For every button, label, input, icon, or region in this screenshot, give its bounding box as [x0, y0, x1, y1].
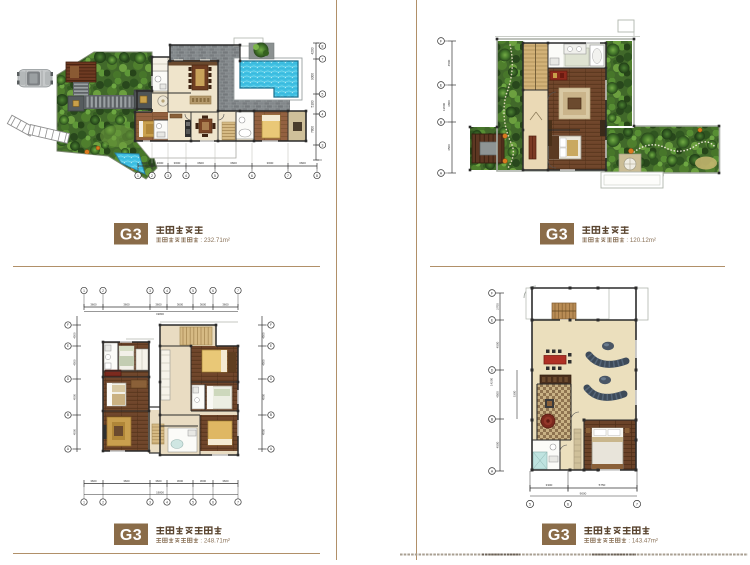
svg-text:8: 8 [322, 44, 324, 48]
svg-text:3600: 3600 [299, 161, 306, 165]
svg-text:3600: 3600 [155, 303, 162, 307]
svg-text:: 143.47m²: : 143.47m² [628, 538, 658, 545]
svg-text:4: 4 [185, 174, 187, 178]
svg-text:2: 2 [102, 289, 104, 293]
svg-text:5: 5 [322, 92, 324, 96]
svg-text:3600: 3600 [222, 479, 229, 483]
svg-text:3600: 3600 [177, 479, 184, 483]
svg-text:3600: 3600 [157, 161, 164, 165]
svg-text:4500: 4500 [262, 359, 266, 366]
svg-text:G3: G3 [120, 227, 142, 244]
svg-text:4500: 4500 [73, 359, 77, 366]
svg-text:4: 4 [166, 289, 168, 293]
svg-text:1: 1 [137, 174, 139, 178]
svg-text:3: 3 [167, 174, 169, 178]
svg-text:G3: G3 [546, 227, 568, 244]
svg-text:6: 6 [212, 500, 214, 504]
svg-text:4500: 4500 [262, 393, 266, 400]
svg-text:3600: 3600 [174, 161, 181, 165]
svg-text:4500: 4500 [495, 341, 499, 348]
svg-text:2: 2 [102, 500, 104, 504]
svg-text:E: E [270, 344, 272, 348]
svg-text:3600: 3600 [197, 161, 204, 165]
svg-text:6: 6 [212, 289, 214, 293]
svg-text:3600: 3600 [123, 303, 130, 307]
svg-text:F: F [67, 323, 69, 327]
svg-text:7: 7 [636, 502, 638, 506]
svg-text:F: F [491, 291, 493, 295]
svg-text:G3: G3 [548, 527, 570, 544]
svg-text:3300: 3300 [513, 390, 517, 397]
svg-text:4200: 4200 [311, 47, 315, 54]
svg-text:9000: 9000 [580, 492, 587, 496]
svg-text:: 120.12m²: : 120.12m² [626, 237, 656, 244]
svg-text:B: B [270, 413, 272, 417]
svg-text:G3: G3 [120, 527, 142, 544]
svg-text:5100: 5100 [311, 100, 315, 107]
svg-text:3600: 3600 [200, 303, 207, 307]
svg-text:4: 4 [166, 500, 168, 504]
svg-text:1: 1 [83, 289, 85, 293]
svg-text:3600: 3600 [267, 161, 274, 165]
svg-text:5: 5 [214, 174, 216, 178]
svg-text:5: 5 [192, 500, 194, 504]
svg-text:4500: 4500 [447, 144, 451, 151]
svg-text:2: 2 [151, 174, 153, 178]
svg-text:4500: 4500 [262, 428, 266, 435]
svg-text:9000: 9000 [311, 73, 315, 80]
svg-text:4500: 4500 [495, 441, 499, 448]
svg-text:4500: 4500 [73, 332, 77, 339]
svg-text:3600: 3600 [123, 479, 130, 483]
svg-text:2700: 2700 [495, 303, 499, 310]
svg-text:4500: 4500 [447, 59, 451, 66]
svg-text:F: F [270, 323, 272, 327]
svg-text:: 248.71m²: : 248.71m² [200, 538, 230, 545]
svg-text:4: 4 [322, 112, 324, 116]
svg-text:13800: 13800 [442, 102, 446, 111]
svg-text:5: 5 [192, 289, 194, 293]
svg-text:6: 6 [567, 502, 569, 506]
svg-text:3: 3 [149, 289, 151, 293]
svg-text:7: 7 [237, 289, 239, 293]
svg-text:: 232.71m²: : 232.71m² [200, 237, 230, 244]
svg-text:3: 3 [149, 500, 151, 504]
svg-text:3600: 3600 [177, 303, 184, 307]
svg-text:14200: 14200 [490, 377, 494, 386]
svg-text:4500: 4500 [73, 393, 77, 400]
svg-text:5: 5 [529, 502, 531, 506]
svg-text:6: 6 [251, 174, 253, 178]
svg-text:3600: 3600 [230, 161, 237, 165]
svg-text:3: 3 [322, 143, 324, 147]
svg-text:3600: 3600 [90, 303, 97, 307]
svg-text:4500: 4500 [262, 332, 266, 339]
svg-text:7: 7 [287, 174, 289, 178]
svg-text:8: 8 [316, 174, 318, 178]
svg-text:1: 1 [83, 500, 85, 504]
svg-text:B: B [67, 413, 69, 417]
svg-text:3300: 3300 [546, 483, 553, 487]
svg-text:3600: 3600 [155, 479, 162, 483]
svg-text:4500: 4500 [73, 428, 77, 435]
svg-text:7800: 7800 [311, 126, 315, 133]
svg-text:3600: 3600 [200, 479, 207, 483]
svg-text:19800: 19800 [156, 312, 164, 316]
svg-text:7: 7 [237, 500, 239, 504]
svg-text:19800: 19800 [156, 490, 164, 494]
svg-text:E: E [67, 344, 69, 348]
svg-text:3600: 3600 [142, 161, 149, 165]
svg-text:7: 7 [322, 57, 324, 61]
svg-text:3600: 3600 [222, 303, 229, 307]
svg-text:4500: 4500 [495, 391, 499, 398]
svg-text:3600: 3600 [90, 479, 97, 483]
svg-text:3800: 3800 [447, 100, 451, 107]
svg-text:5750: 5750 [599, 483, 606, 487]
